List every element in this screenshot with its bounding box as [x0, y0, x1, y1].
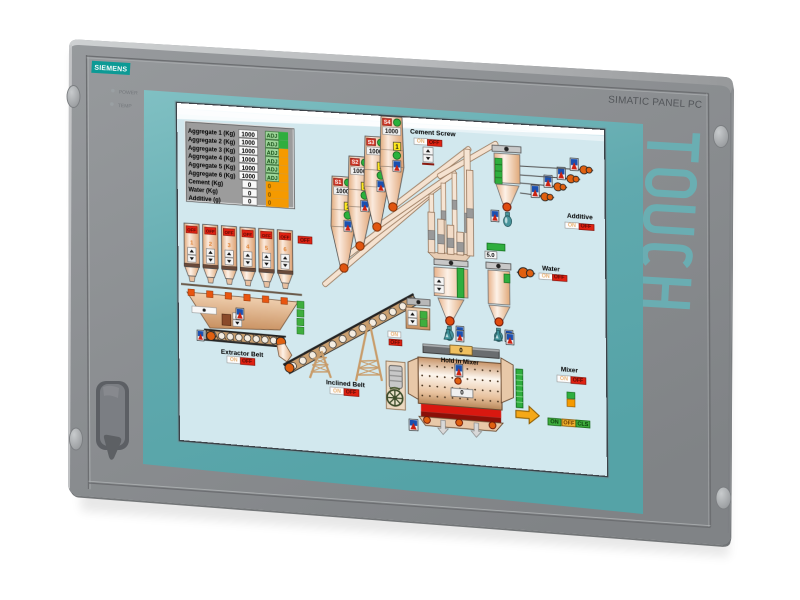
svg-text:OFF: OFF: [390, 340, 400, 347]
svg-text:OFF: OFF: [206, 229, 215, 235]
svg-text:ON: ON: [333, 388, 341, 395]
svg-text:3: 3: [228, 243, 231, 249]
svg-text:5.0: 5.0: [486, 253, 494, 260]
svg-text:ON: ON: [560, 376, 568, 383]
svg-text:OFF: OFF: [242, 358, 252, 365]
svg-text:ON: ON: [230, 357, 238, 364]
svg-text:S2: S2: [352, 160, 359, 167]
svg-text:S1: S1: [335, 180, 342, 187]
svg-text:OFF: OFF: [573, 377, 584, 384]
svg-text:2: 2: [209, 242, 212, 248]
svg-text:ADJ: ADJ: [267, 159, 278, 166]
svg-text:ON: ON: [550, 419, 558, 426]
svg-text:1000: 1000: [241, 139, 255, 147]
svg-text:OFF: OFF: [280, 234, 289, 240]
svg-text:S4: S4: [384, 120, 391, 127]
svg-text:5: 5: [265, 246, 268, 252]
svg-text:ADJ: ADJ: [267, 133, 278, 140]
svg-text:ADJ: ADJ: [267, 142, 278, 149]
svg-text:ADJ: ADJ: [267, 167, 278, 174]
svg-text:ON: ON: [391, 332, 399, 339]
svg-text:OFF: OFF: [429, 139, 439, 146]
svg-text:S3: S3: [368, 140, 375, 147]
svg-text:OFF: OFF: [581, 223, 592, 230]
svg-text:6: 6: [283, 247, 286, 253]
svg-text:OFF: OFF: [346, 389, 356, 396]
svg-text:OFF: OFF: [262, 233, 271, 239]
svg-text:ON: ON: [417, 138, 425, 145]
svg-text:OFF: OFF: [563, 420, 575, 427]
svg-text:POWER: POWER: [119, 89, 139, 96]
svg-text:1000: 1000: [242, 156, 256, 164]
svg-text:ADJ: ADJ: [267, 175, 278, 182]
svg-text:CLS: CLS: [577, 421, 589, 428]
svg-text:Water: Water: [542, 265, 560, 274]
svg-text:1: 1: [190, 240, 193, 246]
svg-text:1000: 1000: [385, 129, 399, 136]
svg-text:ADJ: ADJ: [267, 150, 278, 157]
svg-text:OFF: OFF: [243, 231, 252, 237]
svg-text:TEMP: TEMP: [118, 103, 133, 110]
svg-text:Mixer: Mixer: [561, 366, 579, 375]
svg-text:ON: ON: [568, 222, 576, 229]
svg-text:1000: 1000: [241, 131, 255, 139]
svg-text:ON: ON: [542, 273, 550, 280]
svg-text:OFF: OFF: [300, 238, 310, 245]
svg-text:OFF: OFF: [224, 230, 233, 236]
svg-text:OFF: OFF: [554, 274, 565, 281]
svg-text:OFF: OFF: [187, 227, 196, 233]
